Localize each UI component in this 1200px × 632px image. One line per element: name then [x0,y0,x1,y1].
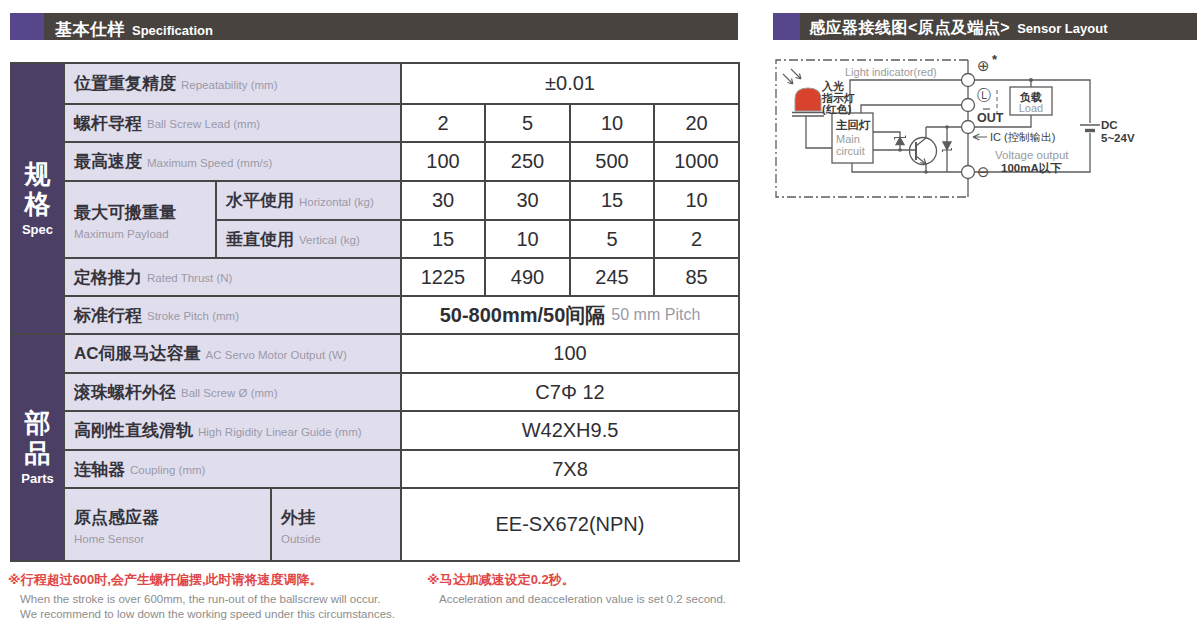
sensor-wiring-diagram: Light indicator(red) 入光 指示灯 (红色) 主回灯 Mai… [773,52,1200,214]
row-label-screw-dia: 滚珠螺杆外径 Ball Screw Ø (mm) [64,373,401,411]
label-en: Rated Thrust (N) [147,272,232,284]
footnote-zh: ※马达加减速设定0.2秒。 [427,571,726,589]
footnote-en: When the stroke is over 600mm, the run-o… [20,592,395,622]
sidebar-parts-en: Parts [21,471,54,486]
row-label-motor: AC伺服马达容量 AC Servo Motor Output (W) [64,334,401,373]
label-zh: 位置重复精度 [74,72,176,95]
wiring-diagram-svg: Light indicator(red) 入光 指示灯 (红色) 主回灯 Mai… [773,52,1200,210]
terminal-minus [962,166,975,179]
value-payload-h-1: 30 [401,181,485,220]
row-label-thrust: 定格推力 Rated Thrust (N) [64,258,401,296]
row-label-speed: 最高速度 Maximum Speed (mm/s) [64,142,401,181]
label-zh: AC伺服马达容量 [74,342,201,365]
section-title-zh: 基本仕样 [55,18,125,41]
footnote-en-line2: We recommend to low down the working spe… [20,607,395,622]
label-zh: 垂直使用 [226,228,294,251]
asterisk-mark: * [992,52,998,67]
value-speed-4: 1000 [654,142,739,181]
label-zh: 标准行程 [74,304,142,327]
light-indicator-zh-line3: (红色) [822,103,852,115]
value-lead-3: 10 [570,104,654,142]
value-motor: 100 [401,334,739,373]
value-stroke-main: 50-800mm/50间隔 [440,302,606,329]
label-en: Horizontal (kg) [299,196,374,208]
row-label-home-sensor-type: 外挂 Outside [271,488,401,561]
value-thrust-3: 245 [570,258,654,296]
label-en: Maximum Payload [74,228,169,240]
specification-section-header: 基本仕样 Specification [10,13,738,40]
value-lead-2: 5 [485,104,570,142]
row-label-payload: 最大可搬重量 Maximum Payload [64,181,216,258]
value-payload-v-1: 15 [401,220,485,258]
sidebar-parts: 部品 Parts [11,334,64,561]
section-title-en: Specification [132,23,213,38]
row-label-guide: 高刚性直线滑轨 High Rigidity Linear Guide (mm) [64,411,401,450]
row-label-stroke: 标准行程 Stroke Pitch (mm) [64,296,401,334]
label-zh: 滚珠螺杆外径 [74,381,176,404]
label-en: Ball Screw Lead (mm) [147,118,260,130]
label-zh: 高刚性直线滑轨 [74,419,193,442]
value-repeatability: ±0.01 [401,63,739,104]
label-zh: 水平使用 [226,189,294,212]
value-home-sensor: EE-SX672(NPN) [401,488,739,561]
main-circuit-zh-label: 主回灯 [835,119,871,131]
sidebar-parts-zh: 部品 [23,409,51,467]
label-en: Stroke Pitch (mm) [147,310,239,322]
main-circuit-en-line1: Main [836,133,860,145]
value-speed-2: 250 [485,142,570,181]
value-thrust-1: 1225 [401,258,485,296]
current-limit-label: 100mA以下 [1001,162,1062,174]
label-en: Repeatability (mm) [181,79,278,91]
light-indicator-en-label: Light indicator(red) [845,66,937,78]
footnote-en-line1: When the stroke is over 600mm, the run-o… [20,592,395,607]
footnote-zh: ※行程超过600时,会产生螺杆偏摆,此时请将速度调降。 [8,571,395,589]
dc-label-line2: 5~24V [1101,132,1135,144]
value-speed-1: 100 [401,142,485,181]
label-zh: 最大可搬重量 [74,201,176,224]
label-en: Maximum Speed (mm/s) [147,157,272,169]
row-label-payload-horizontal: 水平使用 Horizontal (kg) [216,181,401,220]
label-en: Home Sensor [74,533,144,545]
value-stroke: 50-800mm/50间隔 50 mm Pitch [401,296,739,334]
load-en-label: Load [1019,102,1043,114]
main-circuit-en-line2: circuit [836,145,865,157]
ic-output-label: IC (控制输出) [990,131,1055,143]
plus-terminal-symbol: ⊕ [977,57,990,74]
row-label-payload-vertical: 垂直使用 Vertical (kg) [216,220,401,258]
dc-label-line1: DC [1101,119,1118,131]
ic-arrow-icon [973,134,987,140]
l-terminal-symbol: Ⓛ [977,87,991,103]
row-label-repeatability: 位置重复精度 Repeatability (mm) [64,63,401,104]
label-zh: 连轴器 [74,458,125,481]
value-thrust-4: 85 [654,258,739,296]
label-zh: 定格推力 [74,266,142,289]
value-payload-v-3: 5 [570,220,654,258]
label-en: Coupling (mm) [130,464,205,476]
sidebar-spec: 规格 Spec [11,63,64,334]
row-label-home-sensor: 原点感应器 Home Sensor [64,488,271,561]
footnote-acceleration: ※马达加减速设定0.2秒。 Acceleration and deacceler… [427,571,726,607]
voltage-output-label: Voltage output [995,149,1069,161]
section-title-zh: 感应器接线图<原点及端点> [809,18,1010,39]
label-en: AC Servo Motor Output (W) [206,349,347,361]
terminal-l [962,99,975,112]
value-lead-1: 2 [401,104,485,142]
sensor-layout-section-header: 感应器接线图<原点及端点> Sensor Layout [773,13,1197,40]
led-indicator-icon [783,69,824,116]
label-en: High Rigidity Linear Guide (mm) [198,426,362,438]
value-speed-3: 500 [570,142,654,181]
value-payload-v-4: 2 [654,220,739,258]
battery-icon [1080,125,1100,131]
zener-diode-icon [895,136,906,145]
out-label: OUT [977,111,1004,125]
label-zh: 螺杆导程 [74,112,142,135]
terminal-plus [962,74,975,87]
footnote-en: Acceleration and deacceleration value is… [439,592,726,607]
label-en: Outside [281,533,321,545]
value-payload-h-3: 15 [570,181,654,220]
value-lead-4: 20 [654,104,739,142]
footnote-stroke-warning: ※行程超过600时,会产生螺杆偏摆,此时请将速度调降。 When the str… [8,571,395,622]
row-label-coupling: 连轴器 Coupling (mm) [64,450,401,488]
sidebar-spec-zh: 规格 [23,160,51,218]
value-coupling: 7X8 [401,450,739,488]
value-payload-v-2: 10 [485,220,570,258]
spec-table: 规格 Spec 部品 Parts 位置重复精度 Repeatability (m… [10,62,740,562]
value-screw-dia: C7Φ 12 [401,373,739,411]
value-payload-h-4: 10 [654,181,739,220]
value-guide: W42XH9.5 [401,411,739,450]
sidebar-spec-en: Spec [22,222,53,237]
section-title-en: Sensor Layout [1017,21,1107,36]
spec-sheet-page: 基本仕样 Specification 感应器接线图<原点及端点> Sensor … [0,0,1200,632]
label-zh: 外挂 [281,506,315,529]
terminal-out [962,121,975,134]
label-zh: 原点感应器 [74,506,159,529]
value-payload-h-2: 30 [485,181,570,220]
zener-diode-icon [943,142,952,152]
label-en: Vertical (kg) [299,234,360,246]
row-label-lead: 螺杆导程 Ball Screw Lead (mm) [64,104,401,142]
minus-terminal-symbol: ⊖ [977,163,990,180]
label-en: Ball Screw Ø (mm) [181,387,277,399]
value-thrust-2: 490 [485,258,570,296]
label-zh: 最高速度 [74,150,142,173]
value-stroke-sub: 50 mm Pitch [611,306,700,324]
